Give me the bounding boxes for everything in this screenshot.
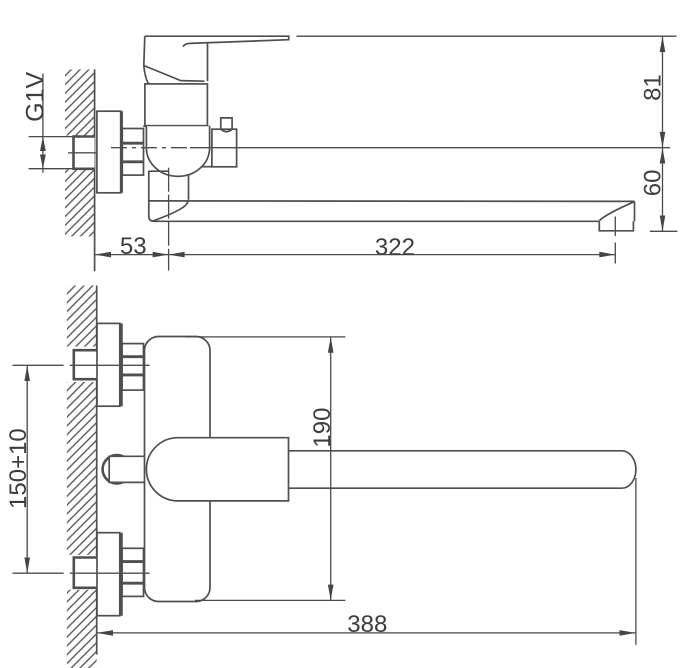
svg-text:190: 190	[309, 408, 336, 448]
svg-text:53: 53	[120, 233, 147, 260]
svg-text:150+10: 150+10	[5, 428, 32, 509]
svg-text:388: 388	[347, 611, 387, 638]
svg-text:322: 322	[375, 234, 415, 261]
svg-text:81: 81	[639, 74, 666, 101]
svg-text:60: 60	[639, 170, 666, 197]
svg-text:G1V: G1V	[22, 71, 50, 121]
